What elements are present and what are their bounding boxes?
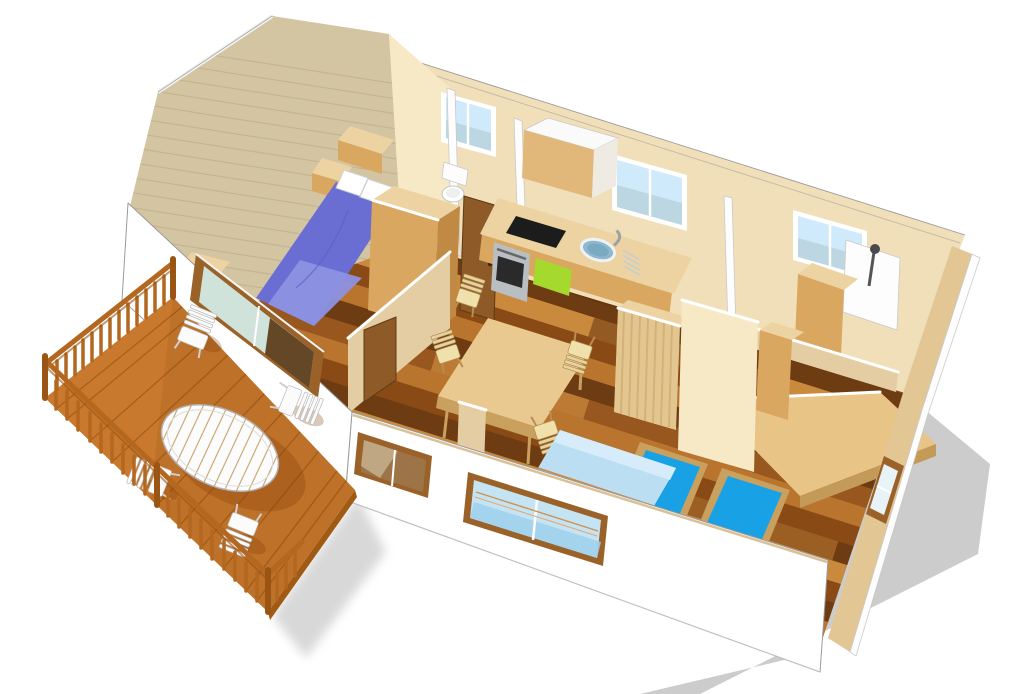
floorplan-render <box>0 0 1024 694</box>
floorplan-svg <box>0 0 1024 694</box>
partition-dining-bedroom2 <box>678 300 758 472</box>
